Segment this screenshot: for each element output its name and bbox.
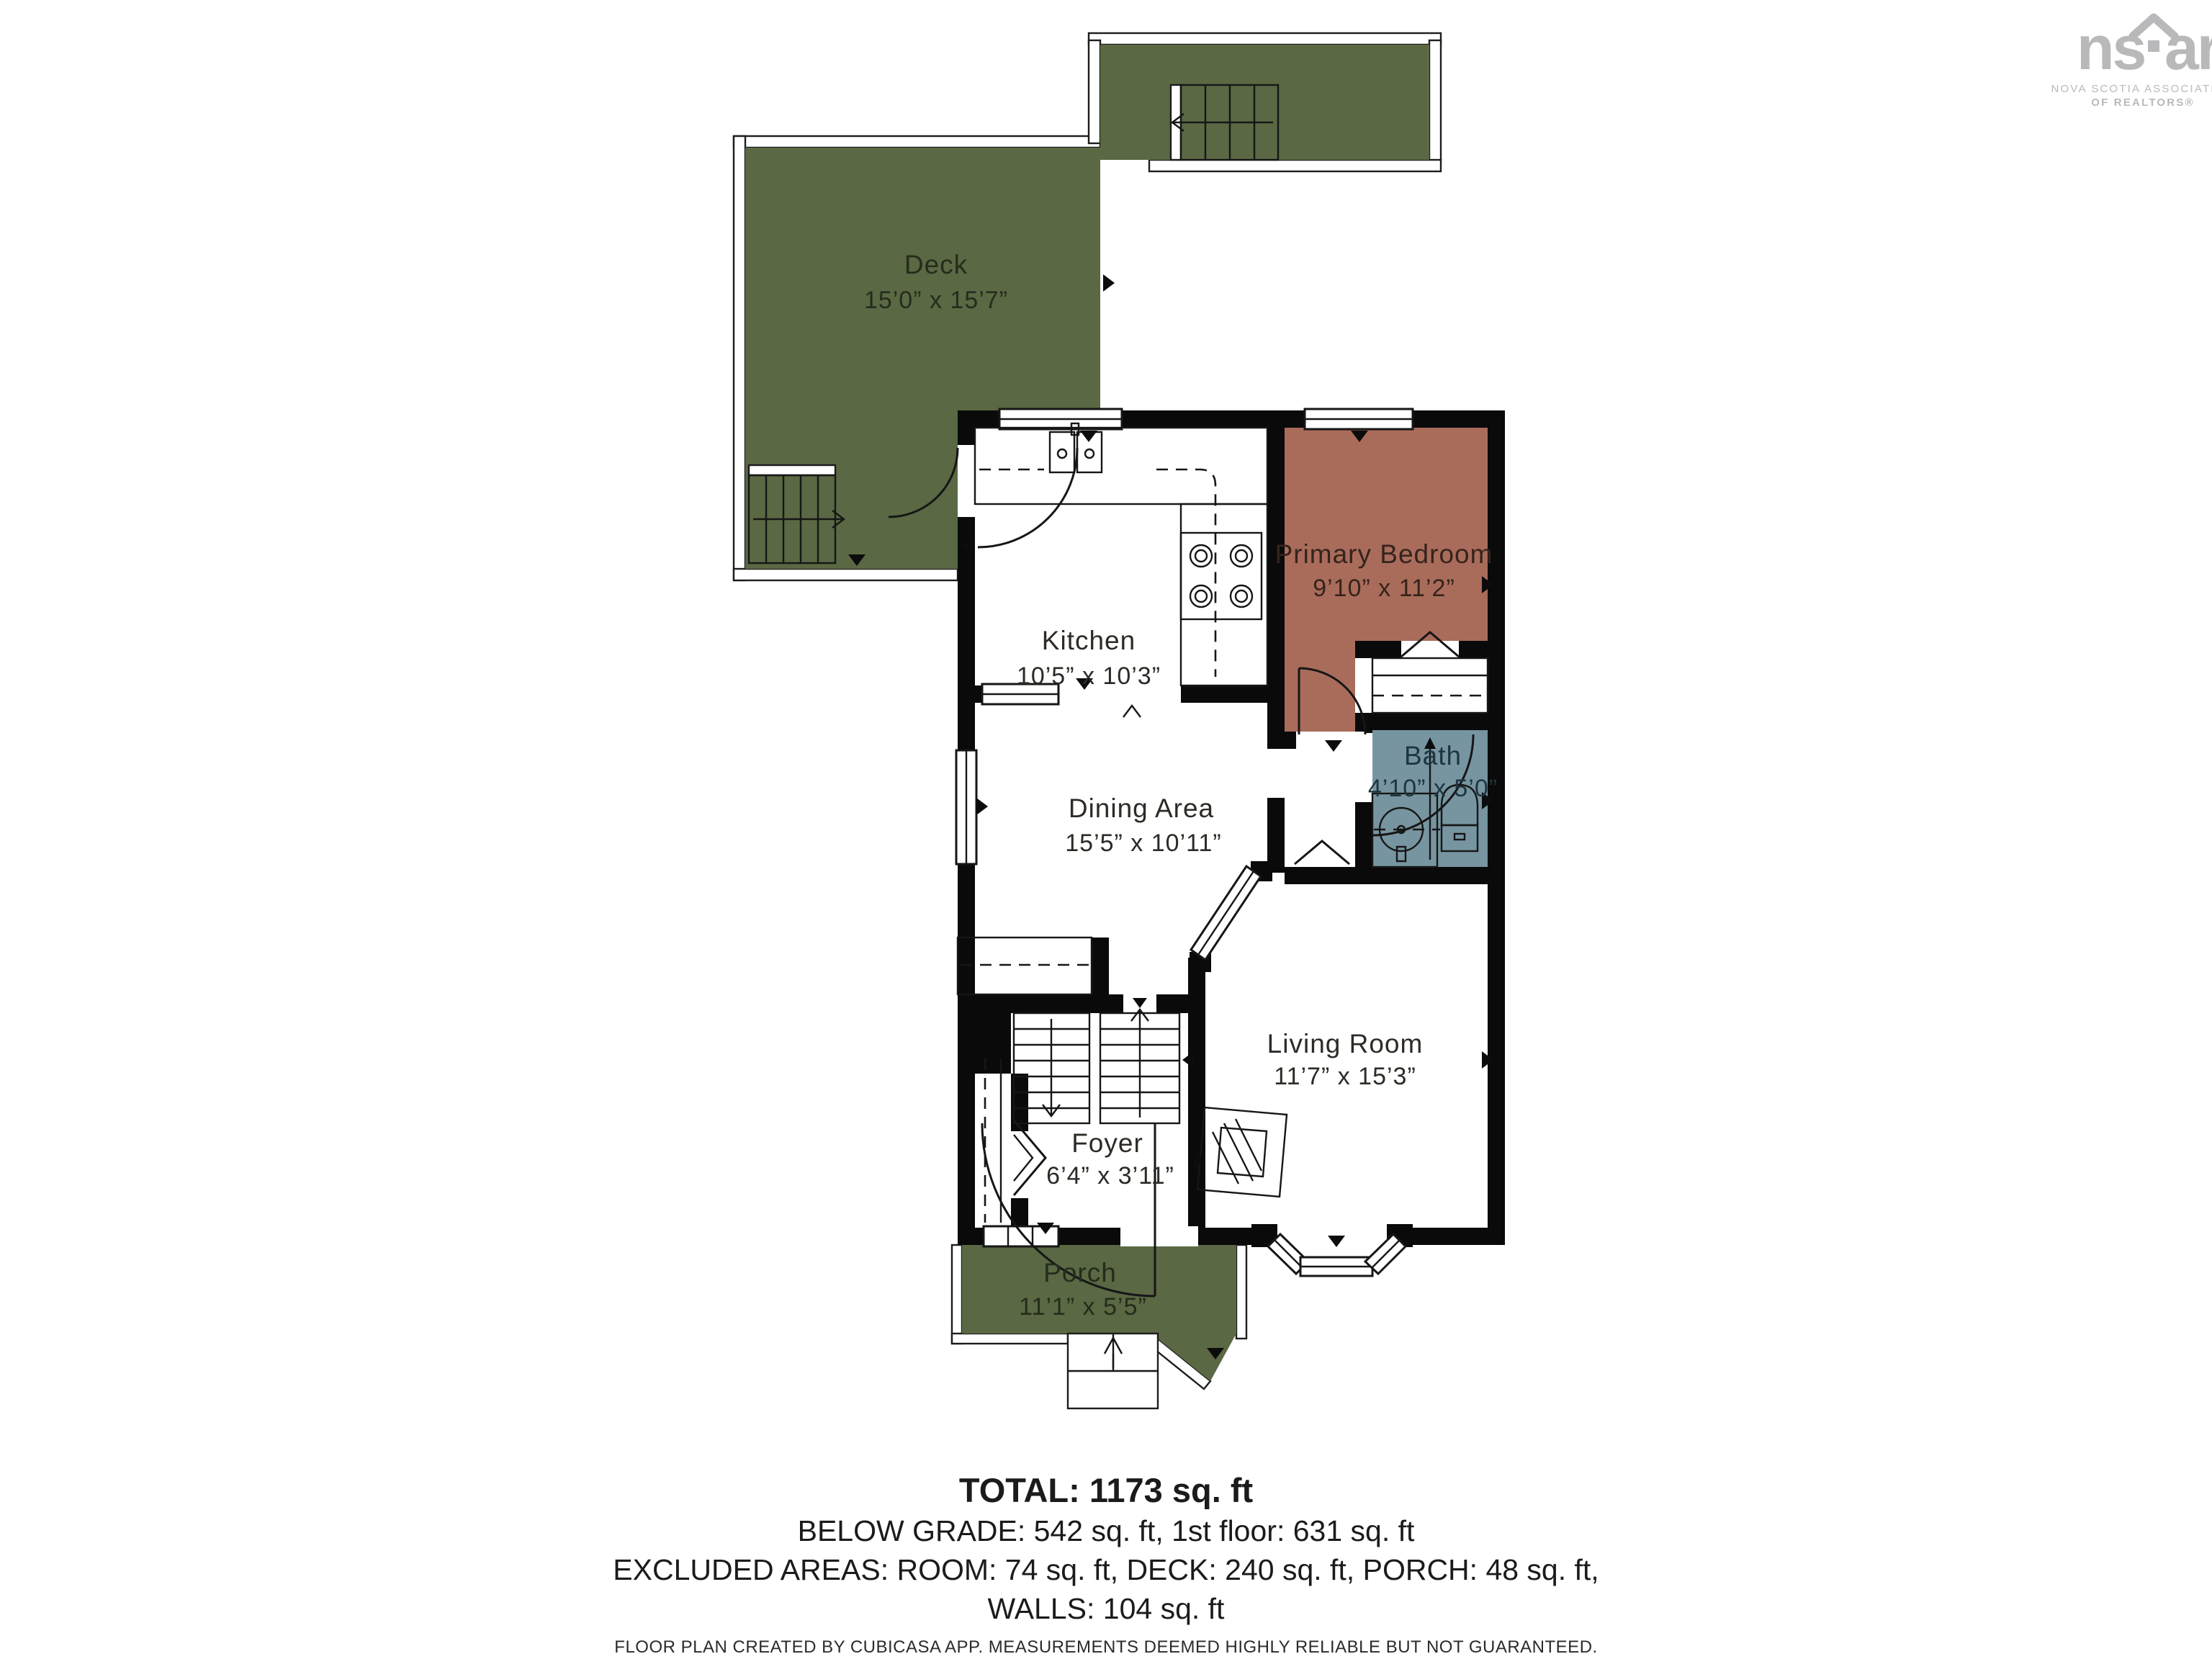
kitchen-window [999,409,1122,429]
dining-dims: 15’5” x 10’11” [1065,829,1222,857]
kitchen-name: Kitchen [1042,626,1136,655]
footer-total: TOTAL: 1173 sq. ft [959,1471,1254,1509]
hall-closet-bifold [1295,841,1349,864]
logo-ar: ar [2164,14,2212,83]
fireplace [1197,1107,1287,1197]
bath-dims: 4’10” x 5’0” [1368,775,1498,802]
bedroom-dims: 9’10” x 11’2” [1313,575,1455,602]
deck-floor [745,148,1100,569]
dining-window [956,750,976,864]
kitchen-dims: 10’5” x 10’3” [1017,662,1161,690]
footer-walls: WALLS: 104 sq. ft [988,1592,1226,1625]
deck-upper-floor [1100,45,1429,160]
front-steps [1068,1334,1158,1408]
deck-name: Deck [904,250,968,279]
bath-name: Bath [1404,741,1462,770]
dining-buffet [958,938,1092,994]
foyer-name: Foyer [1071,1128,1143,1158]
kitchen-counter-right [1181,504,1267,685]
footer-below-grade: BELOW GRADE: 542 sq. ft, 1st floor: 631 … [798,1514,1415,1547]
stove [1181,533,1262,619]
house-icon-dot [2148,40,2159,52]
living-name: Living Room [1267,1029,1424,1058]
footer-excluded-areas: EXCLUDED AREAS: ROOM: 74 sq. ft, DECK: 2… [613,1553,1599,1586]
bedroom-name: Primary Bedroom [1275,539,1493,569]
kitchen-counter [975,428,1267,504]
porch-dims: 11’1” x 5’5” [1019,1293,1147,1321]
logo-association-line2: OF REALTORS® [2091,96,2195,109]
foyer-closet-bifold [1014,1120,1046,1195]
foyer-dims: 6’4” x 3’11” [1046,1162,1174,1190]
floor-plan-svg: Deck 15’0” x 15’7” [0,0,2212,1659]
deck-dims: 15’0” x 15’7” [864,287,1008,314]
footer: TOTAL: 1173 sq. ft BELOW GRADE: 542 sq. … [613,1471,1599,1657]
living-dims: 11’7” x 15’3” [1274,1063,1416,1090]
floor-plan-page: Deck 15’0” x 15’7” [0,0,2212,1659]
footer-disclaimer: FLOOR PLAN CREATED BY CUBICASA APP. MEAS… [614,1637,1597,1657]
porch-name: Porch [1043,1258,1117,1287]
dining-living-window [1191,866,1261,960]
bedroom-window [1305,409,1413,429]
staircase [1014,998,1179,1123]
logo-ns: ns [2077,14,2145,83]
dining-name: Dining Area [1069,793,1214,823]
nsar-logo: ns ar NOVA SCOTIA ASSOCIATION OF REALTOR… [2051,14,2212,109]
logo-association-line1: NOVA SCOTIA ASSOCIATION [2051,83,2212,95]
